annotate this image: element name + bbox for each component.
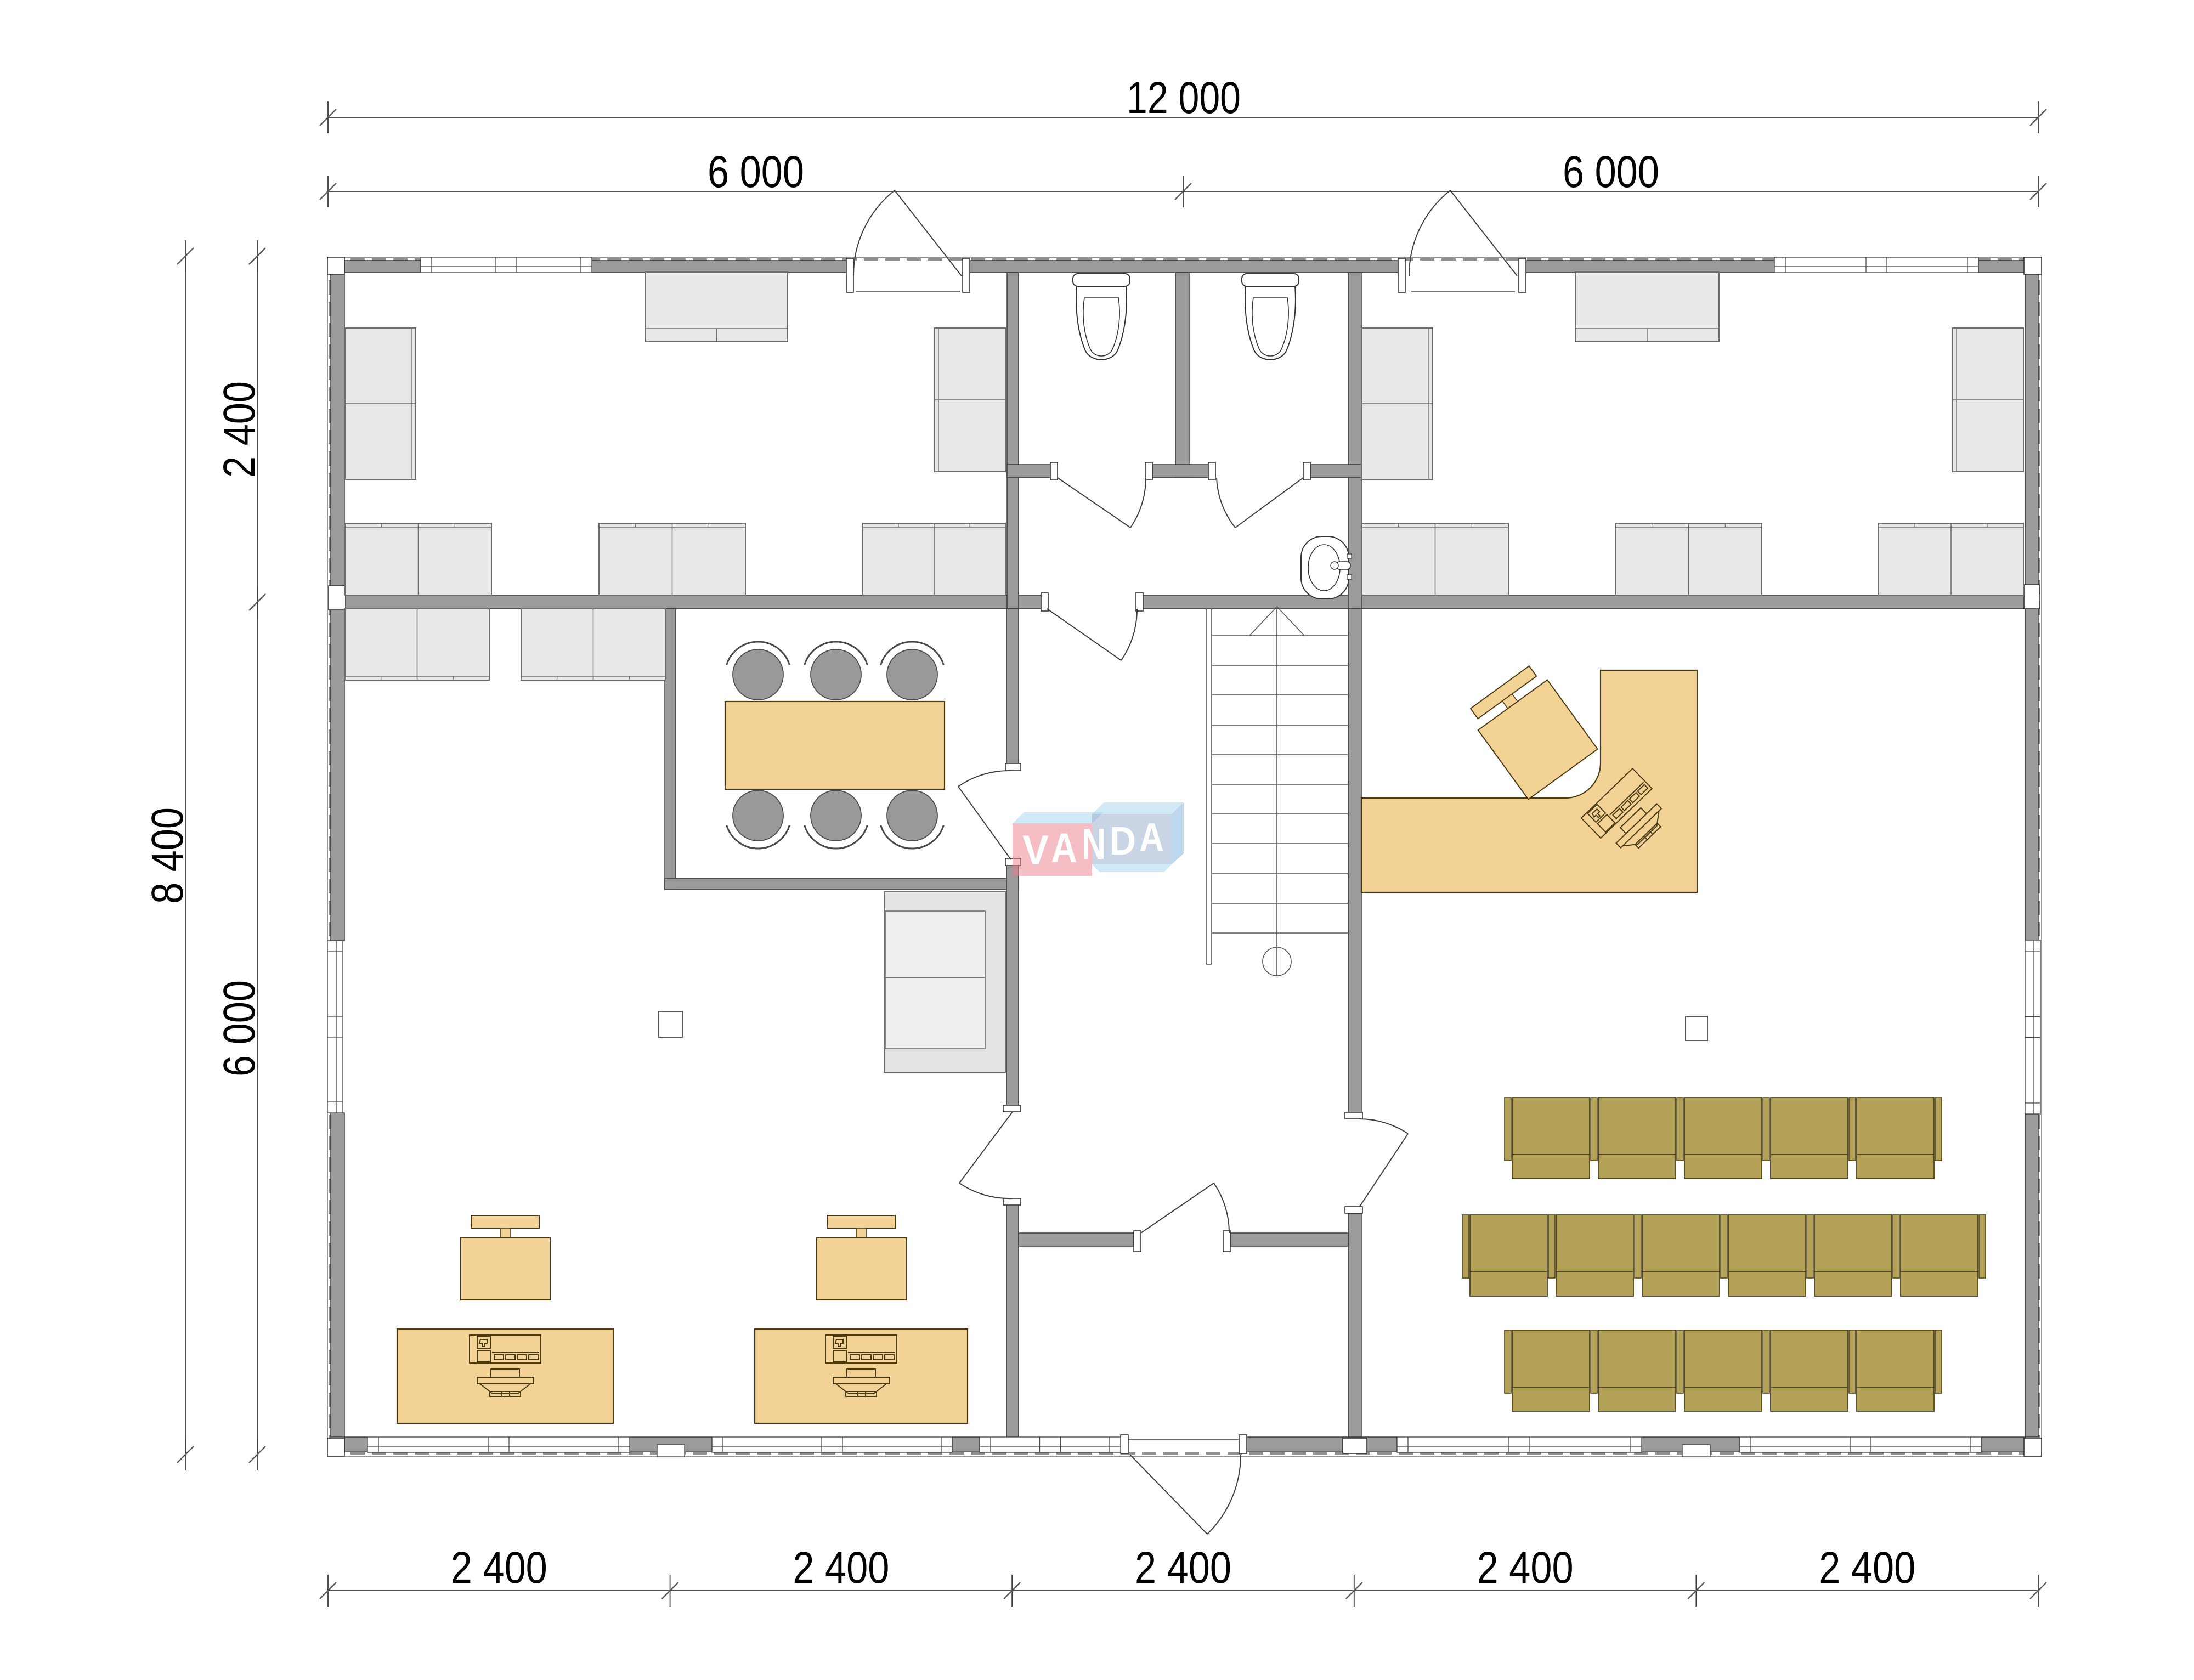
- svg-text:A: A: [1051, 825, 1077, 872]
- svg-text:A: A: [1139, 816, 1164, 859]
- svg-text:2 400: 2 400: [1135, 1543, 1231, 1593]
- svg-text:2 400: 2 400: [451, 1543, 547, 1593]
- svg-text:2 400: 2 400: [1477, 1543, 1574, 1593]
- svg-text:N: N: [1082, 819, 1106, 868]
- svg-text:2 400: 2 400: [1819, 1543, 1915, 1593]
- svg-text:12 000: 12 000: [1127, 73, 1241, 123]
- svg-text:D: D: [1110, 819, 1136, 863]
- svg-text:8 400: 8 400: [143, 807, 193, 904]
- svg-text:6 000: 6 000: [708, 147, 804, 197]
- svg-text:6 000: 6 000: [214, 980, 264, 1077]
- svg-text:2 400: 2 400: [214, 381, 264, 478]
- svg-text:V: V: [1022, 827, 1049, 874]
- svg-text:6 000: 6 000: [1563, 147, 1659, 197]
- svg-text:2 400: 2 400: [793, 1543, 889, 1593]
